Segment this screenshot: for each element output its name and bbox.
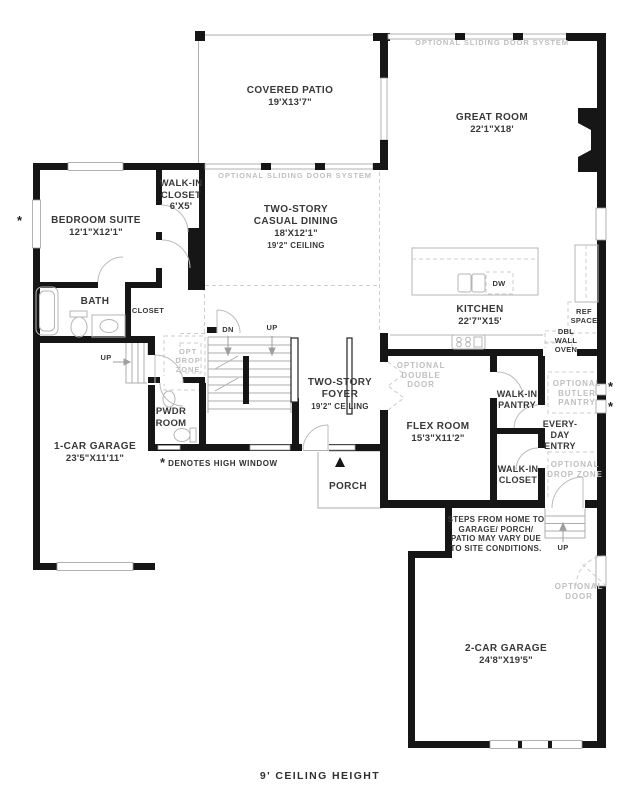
note-sliding-door-top: OPTIONAL SLIDING DOOR SYSTEM	[415, 38, 569, 47]
high-window-legend: *DENOTES HIGH WINDOW	[160, 453, 278, 471]
room-label-1-car-garage: 1-CAR GARAGE 23'5"X11'11"	[54, 441, 136, 465]
vanity	[92, 315, 125, 337]
room-label-pwdr-room: PWDR ROOM	[156, 406, 187, 429]
pwdr-toilet	[174, 429, 190, 442]
ceiling-height-note: 9' CEILING HEIGHT	[260, 770, 380, 782]
label-dishwasher: DW	[492, 279, 505, 288]
room-label-great-room: GREAT ROOM 22'1"X18'	[456, 112, 528, 136]
label-garage-up: UP	[100, 353, 111, 362]
label-optional-double-door: OPTIONAL DOUBLE DOOR	[397, 361, 446, 390]
room-label-walk-in-closet-2: WALK-IN CLOSET	[498, 464, 539, 486]
note-steps: STEPS FROM HOME TO GARAGE/ PORCH/ PATIO …	[448, 515, 545, 553]
room-label-porch: PORCH	[329, 481, 367, 493]
room-label-bath: BATH	[81, 296, 110, 308]
porch-entry-marker	[335, 457, 345, 467]
sink-basin	[458, 274, 471, 292]
vanity-sink	[100, 320, 118, 333]
floorplan-page: COVERED PATIO 19'X13'7" OPTIONAL SLIDING…	[0, 0, 639, 798]
room-label-foyer: TWO-STORY FOYER 19'2" CEILING	[308, 377, 372, 413]
stair-rail	[291, 338, 298, 402]
high-window-marker-left: *	[17, 213, 22, 228]
label-ref-space: REF SPACE	[571, 307, 598, 325]
room-label-walk-in-pantry: WALK-IN PANTRY	[497, 389, 538, 411]
room-label-flex-room: FLEX ROOM 15'3"X11'2"	[406, 421, 469, 445]
room-label-bedroom-suite: BEDROOM SUITE 12'1"X12'1"	[51, 215, 141, 239]
label-opt-drop-zone: OPT DROP ZONE	[175, 347, 200, 374]
label-optional-butler-pantry: OPTIONAL BUTLER PANTRY	[553, 379, 602, 408]
room-label-closet: CLOSET	[132, 306, 164, 315]
room-label-covered-patio: COVERED PATIO 19'X13'7"	[247, 85, 334, 109]
toilet-bowl	[71, 317, 87, 337]
label-optional-door: OPTIONAL DOOR	[555, 582, 604, 601]
room-label-kitchen: KITCHEN 22'7"X15'	[456, 304, 503, 328]
note-sliding-door-mid: OPTIONAL SLIDING DOOR SYSTEM	[218, 171, 372, 180]
room-label-every-day-entry: EVERY- DAY ENTRY	[543, 419, 577, 452]
high-window-marker-right-1: *	[608, 379, 613, 394]
label-exterior-up: UP	[557, 543, 568, 552]
sink-basin	[472, 274, 485, 292]
label-stairs-up: UP	[266, 323, 277, 332]
label-optional-drop-zone: OPTIONAL DROP ZONE	[547, 460, 603, 479]
pwdr-sink	[163, 391, 175, 407]
label-stairs-dn: DN	[222, 325, 233, 334]
label-dbl-wall-oven: DBL WALL OVEN	[555, 327, 577, 354]
toilet-tank	[70, 311, 87, 317]
room-label-2-car-garage: 2-CAR GARAGE 24'8"X19'5"	[465, 643, 547, 667]
room-label-walk-in-closet-1: WALK-IN CLOSET 6'X5'	[160, 178, 203, 213]
kitchen-island	[412, 248, 538, 295]
room-label-casual-dining: TWO-STORY CASUAL DINING 18'X12'1" 19'2" …	[254, 204, 338, 252]
high-window-marker-right-2: *	[608, 399, 613, 414]
